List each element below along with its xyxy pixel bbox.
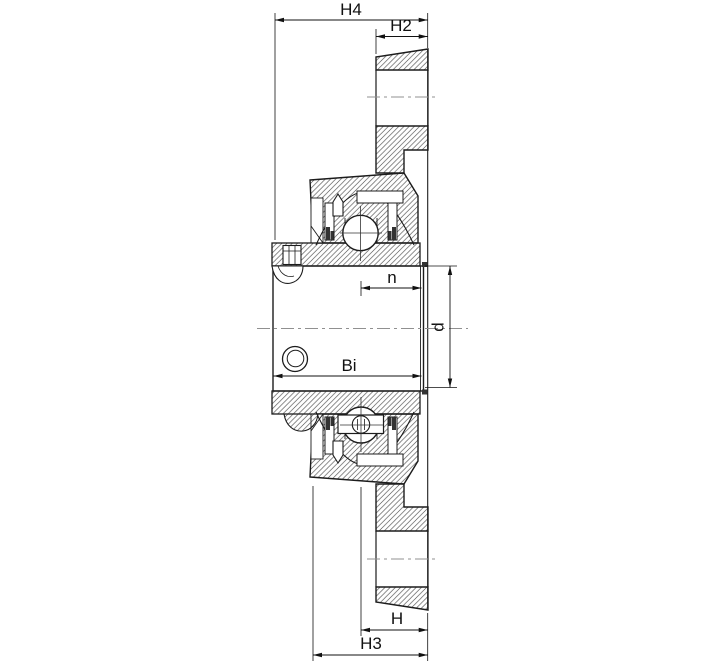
flange-top [376,49,428,173]
dim-h4-label: H4 [340,0,362,19]
dim-h-label: H [391,609,403,628]
dim-h3-label: H3 [360,634,382,653]
flange-top-rim [376,49,428,70]
seal-top-right [388,203,397,240]
flange-top-hub [376,126,428,173]
dim-d-label: d [429,322,448,331]
lube-slot-top [357,191,403,203]
flange-bottom-hub [376,484,428,531]
lube-slot-bottom [357,454,403,466]
dim-bi-label: Bi [341,356,356,375]
flange-bottom [376,484,428,610]
dim-d: d [425,266,457,388]
dim-h2-label: H2 [390,16,412,35]
housing-top-groove [311,198,323,243]
collar-band-bottom [272,391,420,414]
technical-drawing-canvas: H4 H2 n Bi [0,0,720,670]
set-screw-hole-inner [287,350,304,367]
dim-n-label: n [387,268,396,287]
bearing-unit-section-drawing: H4 H2 n Bi [0,0,720,670]
seal-bottom-right [388,417,397,454]
collar-set-screw-top [283,246,301,265]
flange-bottom-rim [376,587,428,610]
